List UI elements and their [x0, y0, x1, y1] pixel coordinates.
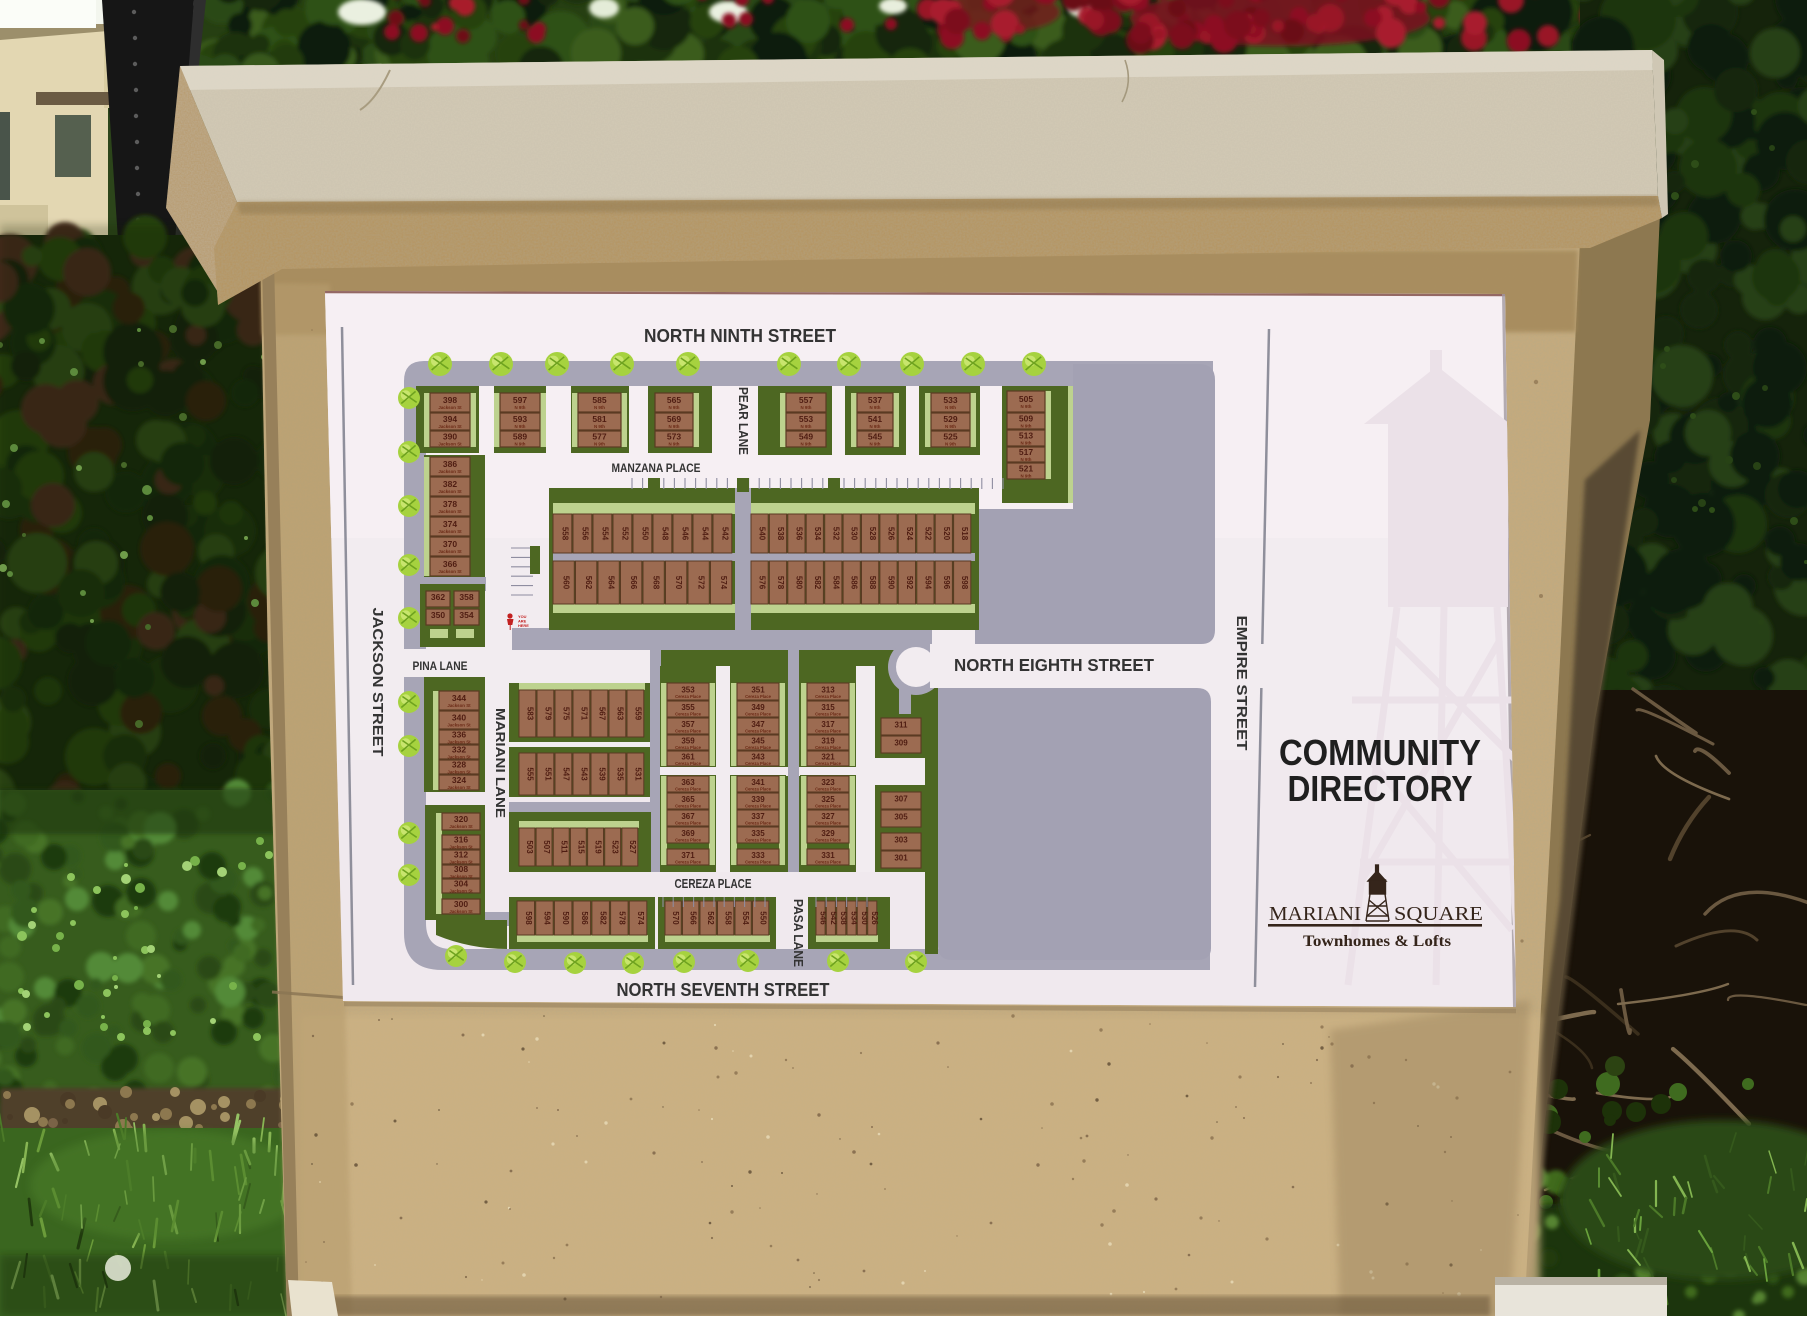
svg-text:324: 324: [452, 775, 466, 785]
svg-text:308: 308: [454, 864, 468, 874]
svg-text:370: 370: [443, 539, 457, 549]
svg-text:Jackson St: Jackson St: [438, 509, 462, 514]
svg-text:550: 550: [759, 911, 768, 925]
svg-text:MANZANA PLACE: MANZANA PLACE: [612, 461, 701, 475]
svg-text:560: 560: [562, 576, 571, 590]
svg-text:530: 530: [850, 527, 859, 541]
svg-text:PEAR LANE: PEAR LANE: [736, 387, 750, 455]
svg-text:Cereza Place: Cereza Place: [745, 860, 772, 865]
svg-text:N 9th: N 9th: [801, 442, 812, 447]
svg-text:340: 340: [452, 713, 466, 723]
svg-text:528: 528: [868, 527, 877, 541]
svg-text:N 9th: N 9th: [594, 405, 605, 410]
svg-text:N 9th: N 9th: [669, 442, 680, 447]
svg-text:553: 553: [799, 414, 813, 424]
svg-text:PASA LANE: PASA LANE: [791, 899, 805, 967]
svg-text:NORTH SEVENTH STREET: NORTH SEVENTH STREET: [617, 980, 830, 1000]
svg-text:304: 304: [454, 879, 468, 889]
svg-text:378: 378: [443, 499, 457, 509]
svg-text:598: 598: [960, 576, 969, 590]
svg-text:362: 362: [431, 592, 445, 602]
svg-text:301: 301: [894, 854, 908, 863]
svg-text:545: 545: [868, 432, 882, 442]
svg-text:588: 588: [868, 576, 877, 590]
svg-text:596: 596: [942, 576, 951, 590]
svg-text:316: 316: [454, 835, 468, 845]
svg-text:Cereza Place: Cereza Place: [745, 804, 772, 809]
svg-text:562: 562: [584, 576, 593, 590]
svg-text:525: 525: [943, 432, 957, 442]
svg-text:537: 537: [868, 395, 882, 405]
svg-text:533: 533: [943, 395, 957, 405]
svg-text:N 9th: N 9th: [1021, 404, 1032, 409]
svg-text:328: 328: [452, 760, 466, 770]
svg-text:N 9th: N 9th: [945, 442, 956, 447]
svg-text:Cereza Place: Cereza Place: [675, 745, 702, 750]
svg-text:Cereza Place: Cereza Place: [745, 694, 772, 699]
svg-text:594: 594: [923, 576, 932, 590]
svg-text:598: 598: [524, 911, 533, 925]
svg-text:CEREZA PLACE: CEREZA PLACE: [675, 877, 752, 891]
svg-text:Cereza Place: Cereza Place: [745, 787, 772, 792]
svg-text:575: 575: [561, 707, 570, 721]
svg-text:Cereza Place: Cereza Place: [745, 729, 772, 734]
svg-text:Cereza Place: Cereza Place: [815, 787, 842, 792]
svg-text:519: 519: [594, 840, 603, 854]
svg-text:NORTH EIGHTH STREET: NORTH EIGHTH STREET: [954, 655, 1154, 675]
svg-text:572: 572: [697, 576, 706, 590]
svg-text:543: 543: [579, 767, 588, 781]
svg-text:584: 584: [831, 576, 840, 590]
svg-text:597: 597: [513, 395, 527, 405]
svg-text:SQUARE: SQUARE: [1394, 903, 1483, 925]
svg-text:344: 344: [452, 693, 466, 703]
svg-text:534: 534: [813, 527, 822, 541]
svg-text:Cereza Place: Cereza Place: [745, 821, 772, 826]
svg-text:540: 540: [758, 527, 767, 541]
svg-text:547: 547: [561, 767, 570, 781]
svg-text:527: 527: [628, 840, 637, 854]
svg-text:EMPIRE STREET: EMPIRE STREET: [1233, 616, 1249, 751]
svg-text:N 9th: N 9th: [1021, 474, 1032, 479]
svg-text:Cereza Place: Cereza Place: [815, 761, 842, 766]
svg-text:N 9th: N 9th: [1021, 441, 1032, 446]
svg-text:570: 570: [671, 911, 680, 925]
svg-text:Jackson St: Jackson St: [438, 469, 462, 474]
svg-text:590: 590: [561, 911, 570, 925]
svg-text:Cereza Place: Cereza Place: [675, 761, 702, 766]
svg-text:523: 523: [611, 840, 620, 854]
svg-text:526: 526: [870, 911, 879, 925]
svg-text:557: 557: [799, 395, 813, 405]
svg-text:N 9th: N 9th: [801, 424, 812, 429]
svg-text:Jackson St: Jackson St: [438, 569, 462, 574]
svg-text:579: 579: [543, 707, 552, 721]
svg-text:524: 524: [905, 527, 914, 541]
svg-text:320: 320: [454, 814, 468, 824]
svg-text:Jackson St: Jackson St: [438, 549, 462, 554]
svg-text:563: 563: [615, 707, 624, 721]
svg-text:336: 336: [452, 730, 466, 740]
svg-text:546: 546: [680, 527, 689, 541]
svg-text:Cereza Place: Cereza Place: [815, 712, 842, 717]
svg-text:Jackson St: Jackson St: [438, 424, 462, 429]
svg-text:517: 517: [1019, 447, 1033, 457]
svg-text:Jackson St: Jackson St: [438, 489, 462, 494]
svg-text:390: 390: [443, 432, 457, 442]
svg-text:589: 589: [513, 432, 527, 442]
svg-text:JACKSON STREET: JACKSON STREET: [369, 608, 385, 757]
svg-text:Jackson St: Jackson St: [449, 889, 473, 894]
svg-text:503: 503: [525, 840, 534, 854]
svg-text:585: 585: [592, 395, 606, 405]
svg-text:300: 300: [454, 899, 468, 909]
svg-text:526: 526: [887, 527, 896, 541]
svg-text:Jackson St: Jackson St: [447, 770, 471, 775]
svg-text:N 9th: N 9th: [870, 442, 881, 447]
svg-text:374: 374: [443, 519, 457, 529]
svg-text:562: 562: [706, 911, 715, 925]
svg-text:N 9th: N 9th: [594, 424, 605, 429]
svg-text:554: 554: [741, 911, 750, 925]
svg-text:Jackson St: Jackson St: [447, 785, 471, 790]
svg-text:332: 332: [452, 745, 466, 755]
svg-text:570: 570: [674, 576, 683, 590]
svg-text:549: 549: [799, 432, 813, 442]
svg-text:HERE: HERE: [518, 623, 529, 628]
svg-text:580: 580: [794, 576, 803, 590]
svg-text:559: 559: [633, 707, 642, 721]
svg-text:Cereza Place: Cereza Place: [815, 821, 842, 826]
svg-text:558: 558: [724, 911, 733, 925]
svg-text:311: 311: [895, 721, 908, 730]
svg-text:576: 576: [758, 576, 767, 590]
svg-text:556: 556: [580, 527, 589, 541]
svg-text:Cereza Place: Cereza Place: [675, 860, 702, 865]
svg-text:536: 536: [794, 527, 803, 541]
svg-text:532: 532: [831, 527, 840, 541]
svg-text:N 9th: N 9th: [1021, 424, 1032, 429]
svg-text:PINA LANE: PINA LANE: [413, 661, 468, 673]
svg-text:509: 509: [1019, 414, 1033, 424]
svg-text:Cereza Place: Cereza Place: [815, 694, 842, 699]
svg-text:592: 592: [905, 576, 914, 590]
svg-text:COMMUNITY: COMMUNITY: [1279, 732, 1481, 773]
svg-text:N 9th: N 9th: [945, 405, 956, 410]
svg-text:N 9th: N 9th: [594, 442, 605, 447]
svg-text:551: 551: [543, 767, 552, 781]
svg-text:Jackson St: Jackson St: [447, 723, 471, 728]
svg-text:394: 394: [443, 414, 457, 424]
svg-text:Cereza Place: Cereza Place: [745, 838, 772, 843]
svg-text:539: 539: [597, 767, 606, 781]
svg-text:522: 522: [923, 527, 932, 541]
svg-text:Jackson St: Jackson St: [438, 442, 462, 447]
svg-text:535: 535: [615, 767, 624, 781]
svg-text:590: 590: [887, 576, 896, 590]
svg-text:Cereza Place: Cereza Place: [675, 712, 702, 717]
svg-text:571: 571: [579, 707, 588, 721]
svg-text:N 9th: N 9th: [870, 424, 881, 429]
svg-text:358: 358: [459, 592, 473, 602]
svg-text:565: 565: [667, 395, 681, 405]
svg-text:N 9th: N 9th: [669, 424, 680, 429]
svg-text:N 9th: N 9th: [669, 405, 680, 410]
svg-text:573: 573: [667, 432, 681, 442]
svg-text:542: 542: [720, 527, 729, 541]
svg-text:544: 544: [700, 527, 709, 541]
svg-text:569: 569: [667, 414, 681, 424]
svg-text:Cereza Place: Cereza Place: [675, 804, 702, 809]
svg-text:Townhomes & Lofts: Townhomes & Lofts: [1303, 933, 1451, 950]
svg-text:312: 312: [454, 850, 468, 860]
svg-text:NORTH NINTH STREET: NORTH NINTH STREET: [644, 326, 836, 346]
svg-text:354: 354: [459, 610, 473, 620]
svg-text:593: 593: [513, 414, 527, 424]
svg-text:566: 566: [689, 911, 698, 925]
svg-text:Jackson St: Jackson St: [449, 824, 473, 829]
svg-text:550: 550: [640, 527, 649, 541]
svg-text:574: 574: [719, 576, 728, 590]
svg-text:307: 307: [894, 795, 908, 804]
svg-text:382: 382: [443, 479, 457, 489]
svg-text:507: 507: [542, 840, 551, 854]
svg-text:N 9th: N 9th: [515, 442, 526, 447]
svg-text:513: 513: [1019, 431, 1033, 441]
svg-text:MARIANI LANE: MARIANI LANE: [493, 708, 507, 818]
svg-text:564: 564: [607, 576, 616, 590]
svg-text:581: 581: [592, 414, 606, 424]
svg-text:578: 578: [617, 911, 626, 925]
svg-text:Cereza Place: Cereza Place: [675, 838, 702, 843]
svg-text:577: 577: [592, 432, 606, 442]
svg-text:Cereza Place: Cereza Place: [675, 694, 702, 699]
svg-text:Cereza Place: Cereza Place: [815, 860, 842, 865]
svg-text:505: 505: [1019, 394, 1033, 404]
svg-text:521: 521: [1019, 464, 1033, 474]
svg-text:583: 583: [525, 707, 534, 721]
svg-text:386: 386: [443, 459, 457, 469]
svg-text:305: 305: [894, 813, 908, 822]
svg-text:Jackson St: Jackson St: [438, 529, 462, 534]
svg-text:Jackson St: Jackson St: [447, 703, 471, 708]
svg-text:518: 518: [960, 527, 969, 541]
svg-text:529: 529: [943, 414, 957, 424]
svg-text:558: 558: [560, 527, 569, 541]
svg-text:586: 586: [580, 911, 589, 925]
svg-text:568: 568: [652, 576, 661, 590]
svg-text:366: 366: [443, 559, 457, 569]
svg-text:582: 582: [813, 576, 822, 590]
svg-text:Cereza Place: Cereza Place: [815, 804, 842, 809]
svg-text:Cereza Place: Cereza Place: [675, 729, 702, 734]
svg-text:Cereza Place: Cereza Place: [815, 729, 842, 734]
svg-text:MARIANI: MARIANI: [1269, 903, 1361, 925]
svg-text:594: 594: [543, 911, 552, 925]
svg-text:350: 350: [431, 610, 445, 620]
svg-text:566: 566: [629, 576, 638, 590]
svg-text:Cereza Place: Cereza Place: [675, 821, 702, 826]
svg-text:303: 303: [894, 836, 908, 845]
svg-text:541: 541: [868, 414, 882, 424]
svg-text:Cereza Place: Cereza Place: [745, 761, 772, 766]
svg-text:574: 574: [636, 911, 645, 925]
svg-text:582: 582: [599, 911, 608, 925]
svg-text:520: 520: [942, 527, 951, 541]
svg-text:538: 538: [776, 527, 785, 541]
svg-text:567: 567: [597, 707, 606, 721]
svg-text:N 9th: N 9th: [801, 405, 812, 410]
svg-text:Jackson St: Jackson St: [449, 909, 473, 914]
svg-text:Cereza Place: Cereza Place: [745, 712, 772, 717]
svg-text:Cereza Place: Cereza Place: [815, 745, 842, 750]
svg-text:309: 309: [894, 739, 908, 748]
svg-text:Jackson St: Jackson St: [438, 405, 462, 410]
svg-text:Cereza Place: Cereza Place: [815, 838, 842, 843]
svg-text:N 9th: N 9th: [1021, 457, 1032, 462]
svg-text:N 9th: N 9th: [515, 405, 526, 410]
svg-text:586: 586: [850, 576, 859, 590]
svg-text:552: 552: [620, 527, 629, 541]
svg-text:N 9th: N 9th: [515, 424, 526, 429]
svg-text:511: 511: [559, 841, 568, 854]
svg-text:Cereza Place: Cereza Place: [675, 787, 702, 792]
svg-text:578: 578: [776, 576, 785, 590]
svg-text:Cereza Place: Cereza Place: [745, 745, 772, 750]
svg-text:N 9th: N 9th: [870, 405, 881, 410]
svg-text:548: 548: [660, 527, 669, 541]
svg-text:555: 555: [525, 767, 534, 781]
svg-text:554: 554: [600, 527, 609, 541]
svg-text:515: 515: [576, 840, 585, 854]
svg-text:398: 398: [443, 395, 457, 405]
svg-text:DIRECTORY: DIRECTORY: [1288, 768, 1473, 809]
svg-text:N 9th: N 9th: [945, 424, 956, 429]
svg-text:531: 531: [633, 767, 642, 781]
